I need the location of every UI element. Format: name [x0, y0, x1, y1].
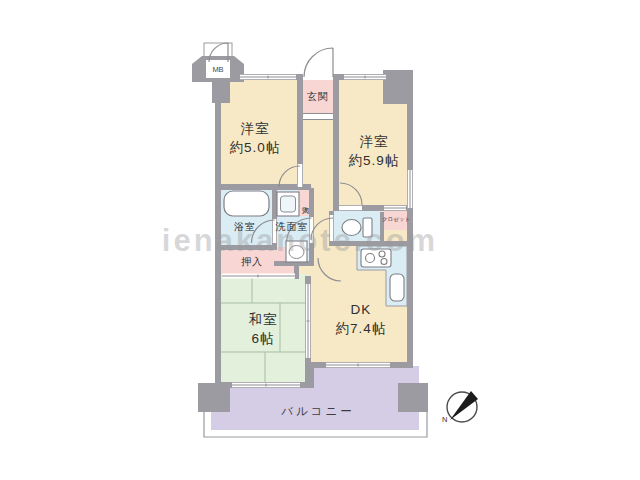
japanese-room-name: 和室: [249, 311, 278, 330]
label-western1: 洋室 約5.0帖: [230, 120, 281, 158]
label-japanese-room: 和室 6帖: [249, 311, 278, 349]
western2-size: 約5.9帖: [349, 152, 400, 171]
western1-size: 約5.0帖: [230, 139, 281, 158]
label-balcony: バルコニー: [281, 403, 355, 419]
floorplan-canvas: N ienakanote.com 洋室 約5.0帖 洋室 約5.9帖 和室 6帖…: [0, 0, 640, 480]
bathtub-icon: [224, 191, 269, 216]
label-washroom: 洗面室: [276, 220, 309, 234]
wall-entrance-right: [333, 80, 339, 211]
pillar-top-right: [383, 70, 413, 104]
door-gap-western2: [339, 206, 362, 210]
label-western2: 洋室 約5.9帖: [349, 133, 400, 171]
label-entrance: 玄関: [307, 90, 329, 104]
entrance-step: [303, 113, 333, 120]
washing-machine-icon: [277, 192, 299, 216]
japanese-room-size: 6帖: [249, 330, 278, 349]
entrance-door-arc: [304, 48, 333, 77]
wall-western1-bottom: [215, 184, 311, 190]
label-dk: DK 約7.4帖: [336, 301, 387, 339]
compass-n-label: N: [442, 415, 447, 424]
pillar-bottom-right: [398, 383, 428, 412]
western1-name: 洋室: [230, 120, 281, 139]
dk-name: DK: [336, 301, 387, 320]
label-meter-box: MB: [212, 65, 223, 76]
label-closet: クロゼット: [382, 216, 410, 224]
dk-size: 約7.4帖: [336, 320, 387, 339]
western2-name: 洋室: [349, 133, 400, 152]
label-oshiire: 押入: [241, 255, 263, 269]
door-gap-western1: [298, 164, 302, 187]
compass-icon: N: [442, 391, 478, 424]
pillar-bottom-left: [198, 383, 230, 412]
entrance-opening: [303, 74, 333, 80]
label-storage-monoire: 物入: [300, 200, 310, 202]
sink-kitchen-icon: [390, 274, 404, 301]
label-bathroom: 浴室: [234, 220, 256, 234]
